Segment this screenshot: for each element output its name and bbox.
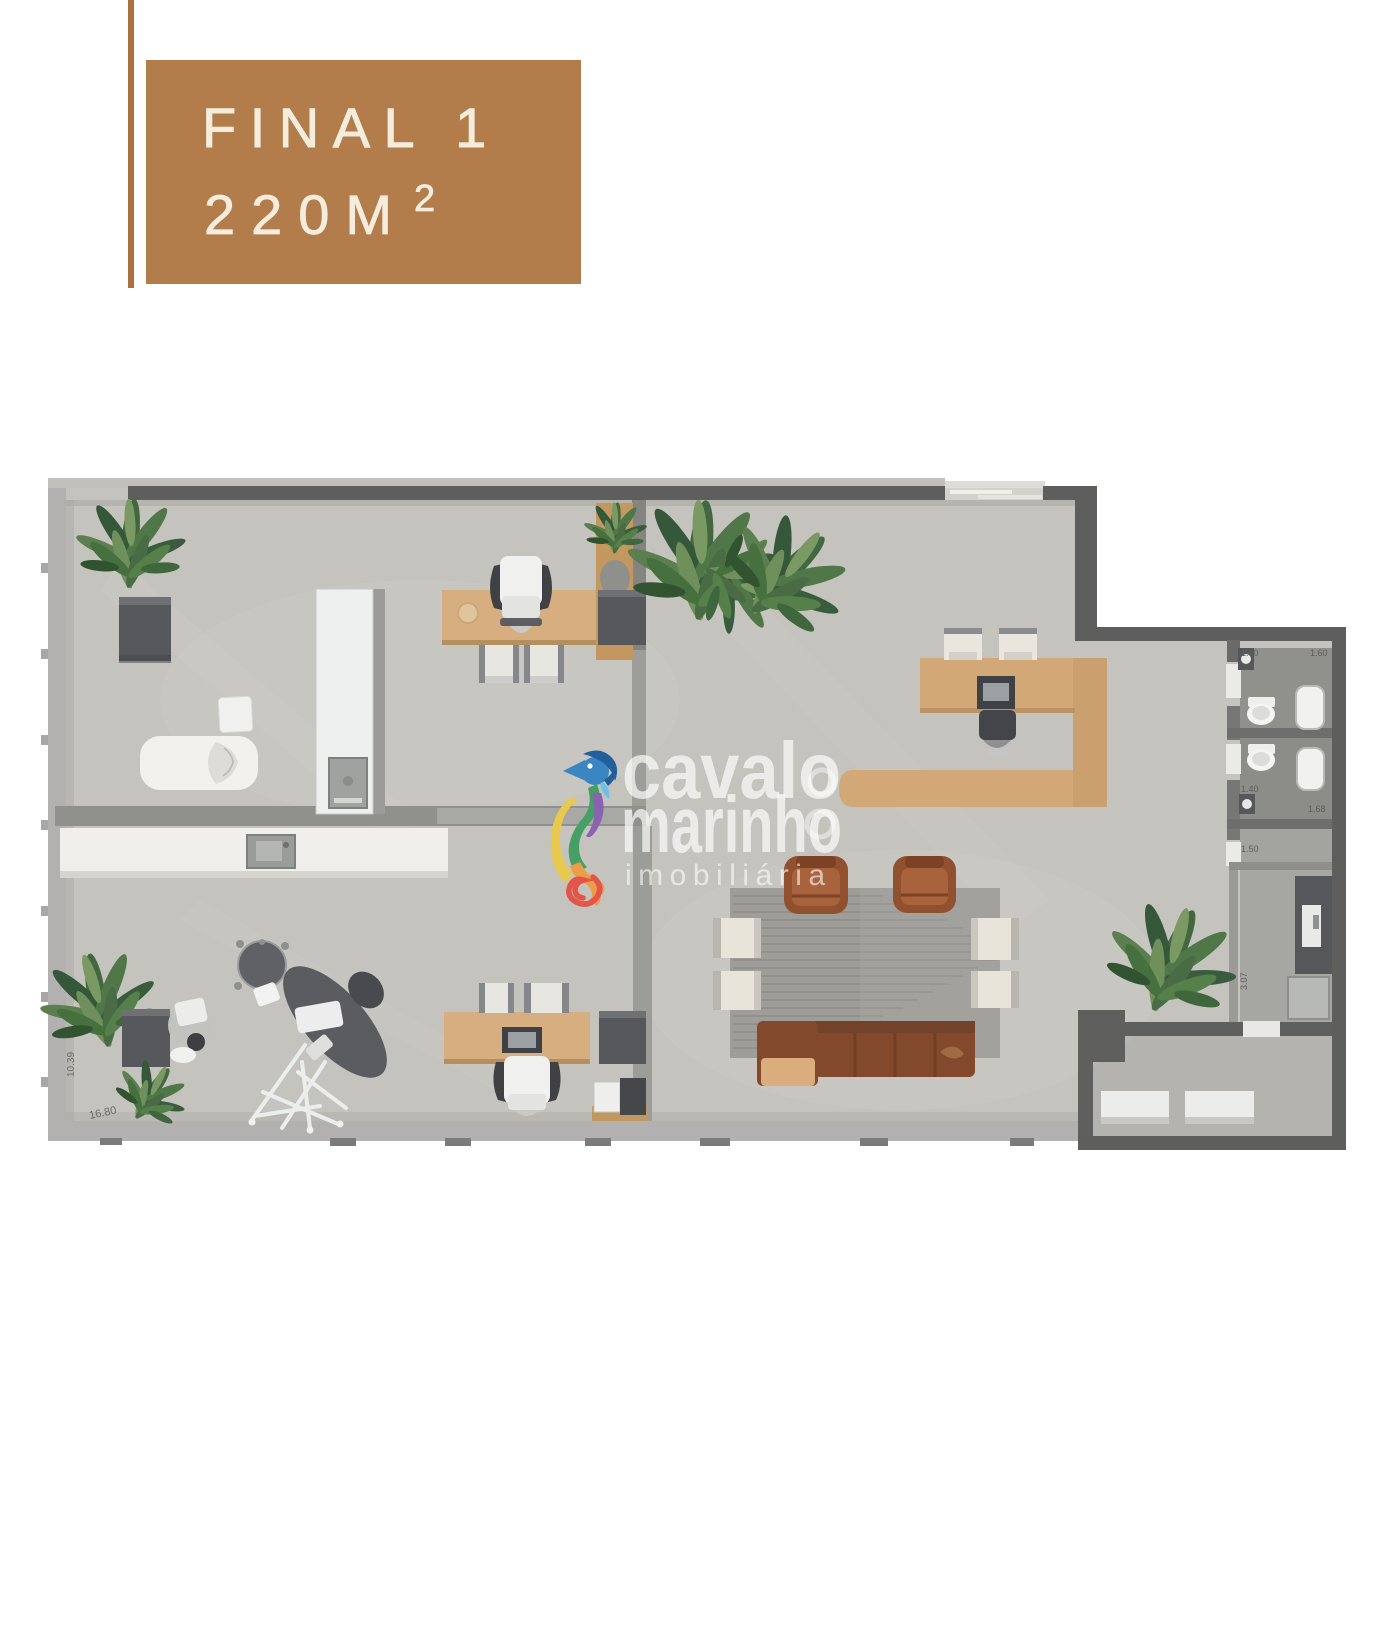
- svg-text:3.07: 3.07: [1239, 972, 1249, 990]
- svg-text:1.50: 1.50: [1241, 844, 1259, 854]
- svg-text:2: 2: [414, 178, 435, 220]
- svg-text:10.39: 10.39: [66, 1052, 77, 1077]
- svg-text:marinho: marinho: [621, 779, 842, 869]
- svg-text:1.40: 1.40: [1241, 648, 1259, 658]
- svg-text:1.68: 1.68: [1308, 804, 1326, 814]
- svg-text:220M: 220M: [204, 183, 408, 246]
- svg-text:imobiliária: imobiliária: [625, 859, 832, 892]
- svg-text:1.40: 1.40: [1241, 784, 1259, 794]
- svg-text:1.60: 1.60: [1310, 648, 1328, 658]
- svg-text:FINAL 1: FINAL 1: [202, 96, 500, 159]
